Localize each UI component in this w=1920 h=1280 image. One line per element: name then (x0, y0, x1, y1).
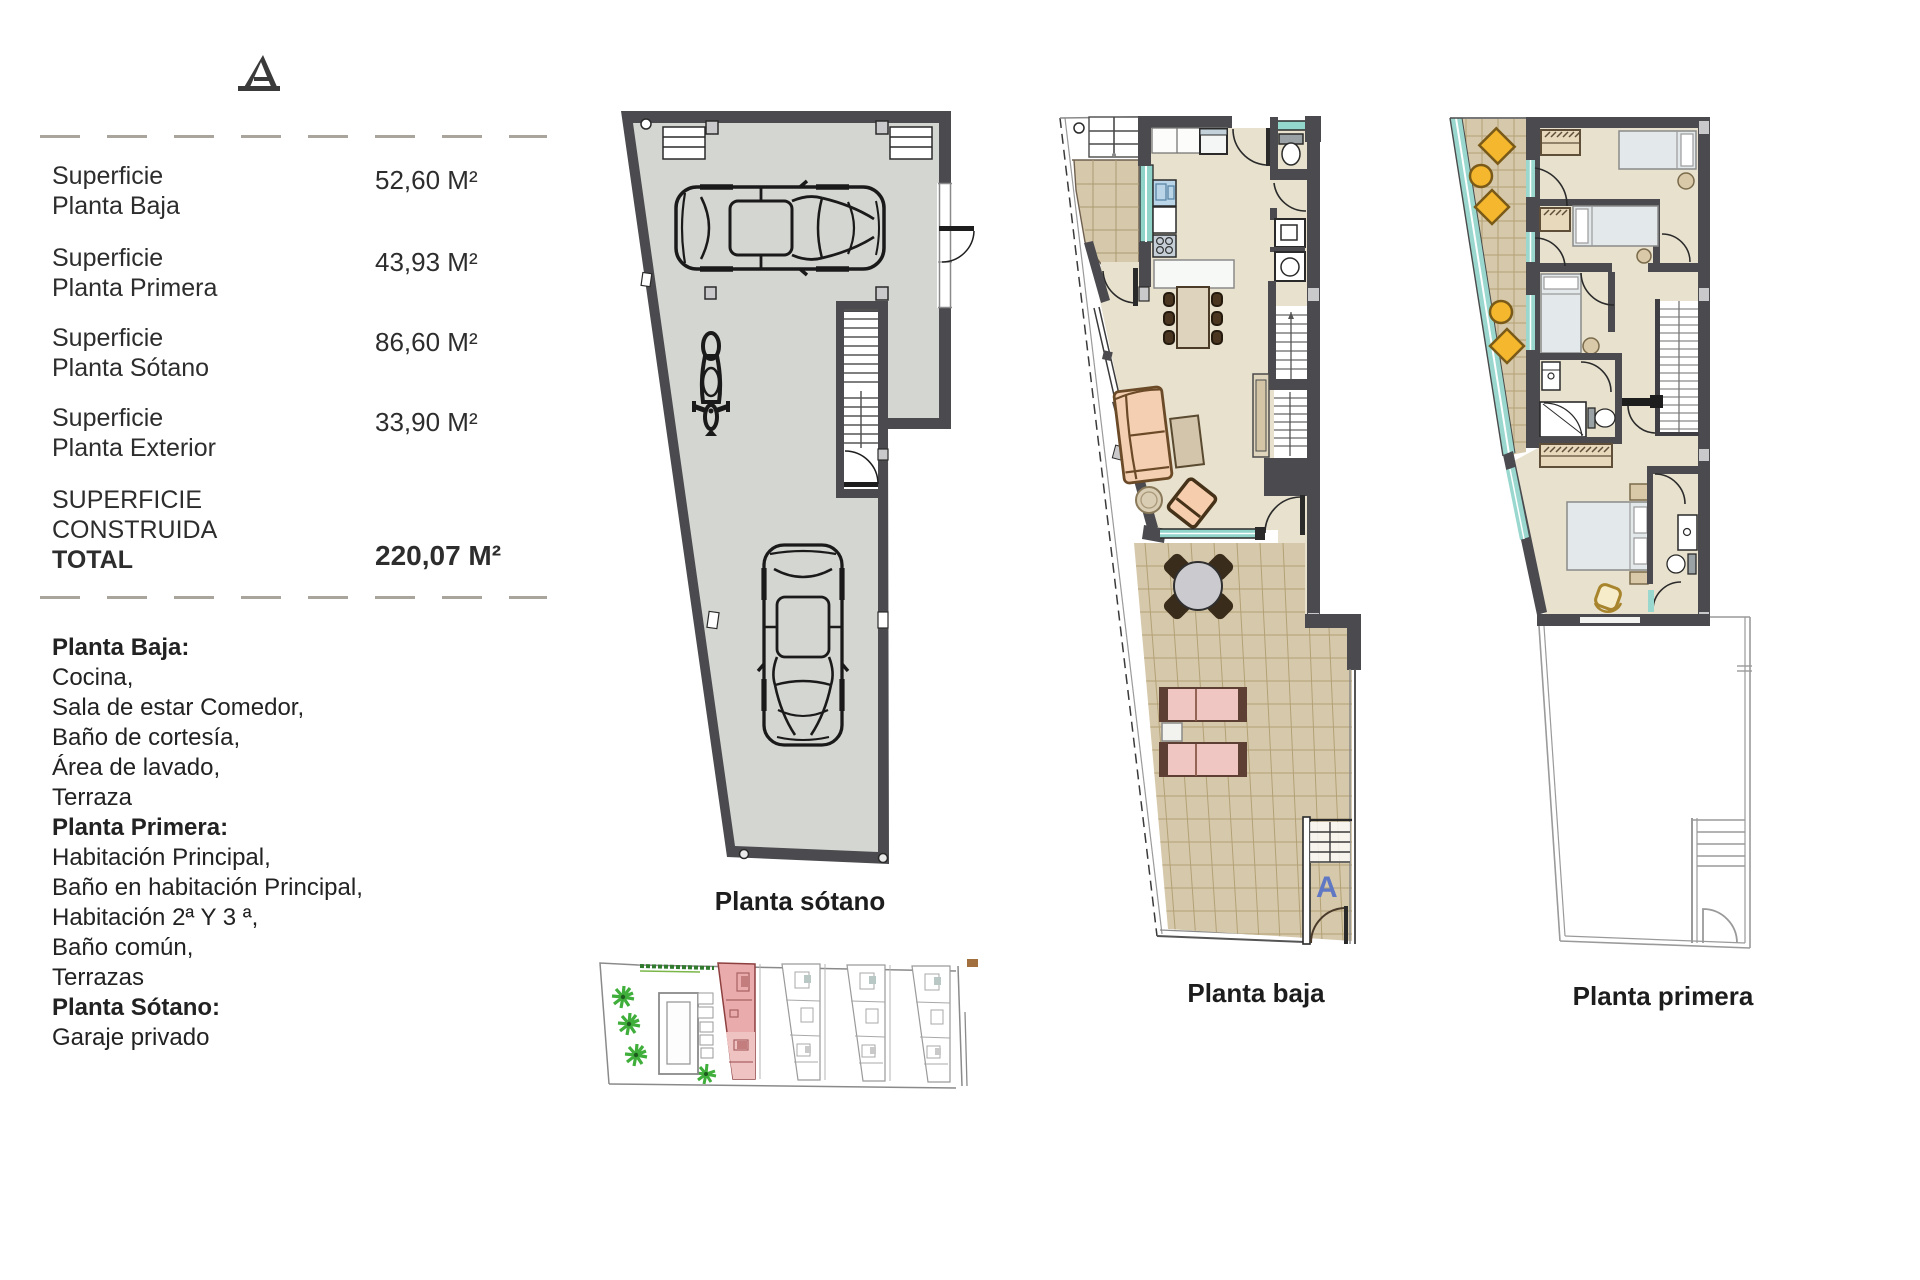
svg-text:A: A (1316, 871, 1338, 904)
